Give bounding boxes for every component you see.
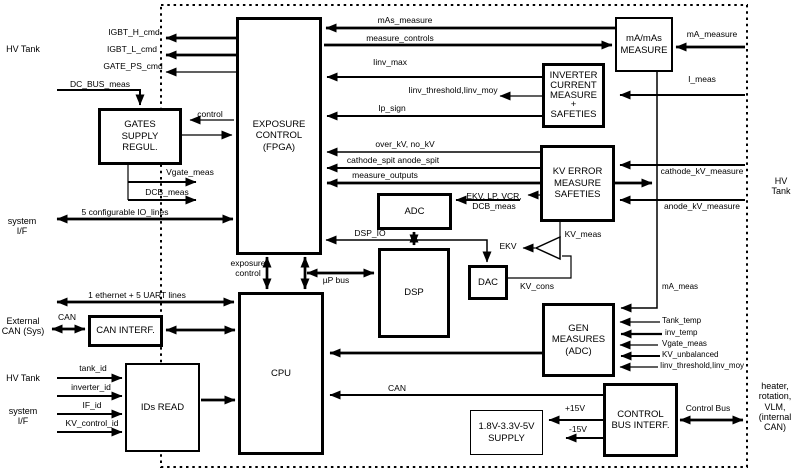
- signal-ma-measure: mA_measure: [687, 30, 738, 40]
- label-system-if-left: system I/F: [8, 216, 37, 237]
- signal-ekv: EKV: [499, 242, 516, 252]
- signal-up-bus: µP bus: [323, 276, 349, 286]
- signal-exposure-control: exposure control: [231, 259, 266, 279]
- signal-control: control: [197, 110, 223, 120]
- signal-dsp-io: DSP_IO: [354, 229, 385, 239]
- signal-measure-controls: measure_controls: [366, 34, 434, 44]
- signal-inv-temp: inv_temp: [665, 328, 697, 337]
- label-internal-can: heater, rotation, VLM, (internal CAN): [759, 381, 792, 433]
- signal-inverter-id: inverter_id: [71, 383, 111, 393]
- block-cpu: CPU: [238, 292, 324, 455]
- signal-igbt-l-cmd: IGBT_L_cmd: [107, 45, 157, 55]
- signal-kv-meas: KV_meas: [565, 230, 602, 240]
- signal-gate-ps-cmd: GATE_PS_cmd: [103, 62, 162, 72]
- signal-igbt-h-cmd: IGBT_H_cmd: [108, 28, 160, 38]
- signal-can-left: CAN: [58, 313, 76, 323]
- signal-ethernet-uart: 1 ethernet + 5 UART lines: [88, 291, 186, 301]
- signal-anode-kv-measure: anode_kV_measure: [664, 202, 740, 212]
- signal-ip-sign: Ip_sign: [378, 104, 405, 114]
- signal-iinv-threshold-2: Iinv_threshold,Iinv_moy: [660, 361, 744, 370]
- block-dsp: DSP: [378, 248, 450, 338]
- amplifier-icon: [536, 237, 560, 259]
- block-control-bus-interf: CONTROL BUS INTERF.: [603, 383, 678, 457]
- signal-mas-measure: mAs_measure: [378, 16, 433, 26]
- signal-measure-outputs: measure_outputs: [352, 171, 418, 181]
- signal-plus-15v: +15V: [565, 404, 585, 414]
- signal-can-bottom: CAN: [388, 384, 406, 394]
- signal-cathode-kv-measure: cathode_kV_measure: [661, 167, 744, 177]
- block-diagram: EXPOSURE CONTROL (FPGA) GATES SUPPLY REG…: [0, 0, 800, 475]
- signal-if-id: IF_id: [83, 401, 102, 411]
- block-adc: ADC: [377, 193, 452, 230]
- block-can-interf: CAN INTERF.: [88, 315, 163, 347]
- signal-dcb-meas: DCB_meas: [145, 188, 188, 198]
- signal-minus-15v: -15V: [569, 425, 587, 435]
- signal-kv-cons: KV_cons: [520, 282, 554, 292]
- signal-cathode-spit: cathode_spit anode_spit: [347, 156, 439, 166]
- block-dac: DAC: [468, 265, 508, 300]
- signal-i-meas: I_meas: [688, 75, 716, 85]
- block-kv-error-measure: KV ERROR MEASURE SAFETIES: [540, 145, 615, 222]
- signal-tank-temp: Tank_temp: [662, 316, 701, 325]
- block-gen-measures: GEN MEASURES (ADC): [542, 303, 615, 377]
- signal-tank-id: tank_id: [79, 364, 106, 374]
- block-gates-supply-regul: GATES SUPPLY REGUL.: [98, 108, 182, 165]
- signal-iinv-max: Iinv_max: [373, 58, 407, 68]
- signal-io-lines: 5 configurable IO_lines: [82, 208, 169, 218]
- signal-over-kv: over_kV, no_kV: [375, 140, 434, 150]
- label-hv-tank-right: HV Tank: [771, 176, 790, 197]
- block-inverter-current-measure: INVERTER CURRENT MEASURE + SAFETIES: [542, 63, 605, 128]
- signal-control-bus: Control Bus: [686, 404, 730, 414]
- block-exposure-control: EXPOSURE CONTROL (FPGA): [236, 17, 322, 255]
- signal-ma-meas: mA_meas: [662, 282, 698, 291]
- signal-kv-unbalanced: KV_unbalanced: [662, 350, 719, 359]
- block-ma-mas-measure: mA/mAs MEASURE: [615, 17, 673, 72]
- label-hv-tank-bottom-left: HV Tank: [6, 373, 40, 383]
- signal-adc-inputs: EKV, LP, VCR, DCB_meas: [466, 192, 521, 212]
- signal-iinv-threshold: Iinv_threshold,Iinv_moy: [408, 86, 497, 96]
- block-supply: 1.8V-3.3V-5V SUPPLY: [470, 410, 543, 455]
- signal-kv-control-id: KV_control_id: [66, 419, 119, 429]
- signal-dc-bus-meas: DC_BUS_meas: [70, 80, 130, 90]
- label-hv-tank-top-left: HV Tank: [6, 44, 40, 54]
- label-external-can: External CAN (Sys): [2, 316, 45, 337]
- label-system-if-bottom: system I/F: [9, 406, 38, 427]
- block-ids-read: IDs READ: [125, 363, 200, 452]
- signal-vgate-meas: Vgate_meas: [166, 168, 214, 178]
- signal-vgate-meas-2: Vgate_meas: [662, 339, 707, 348]
